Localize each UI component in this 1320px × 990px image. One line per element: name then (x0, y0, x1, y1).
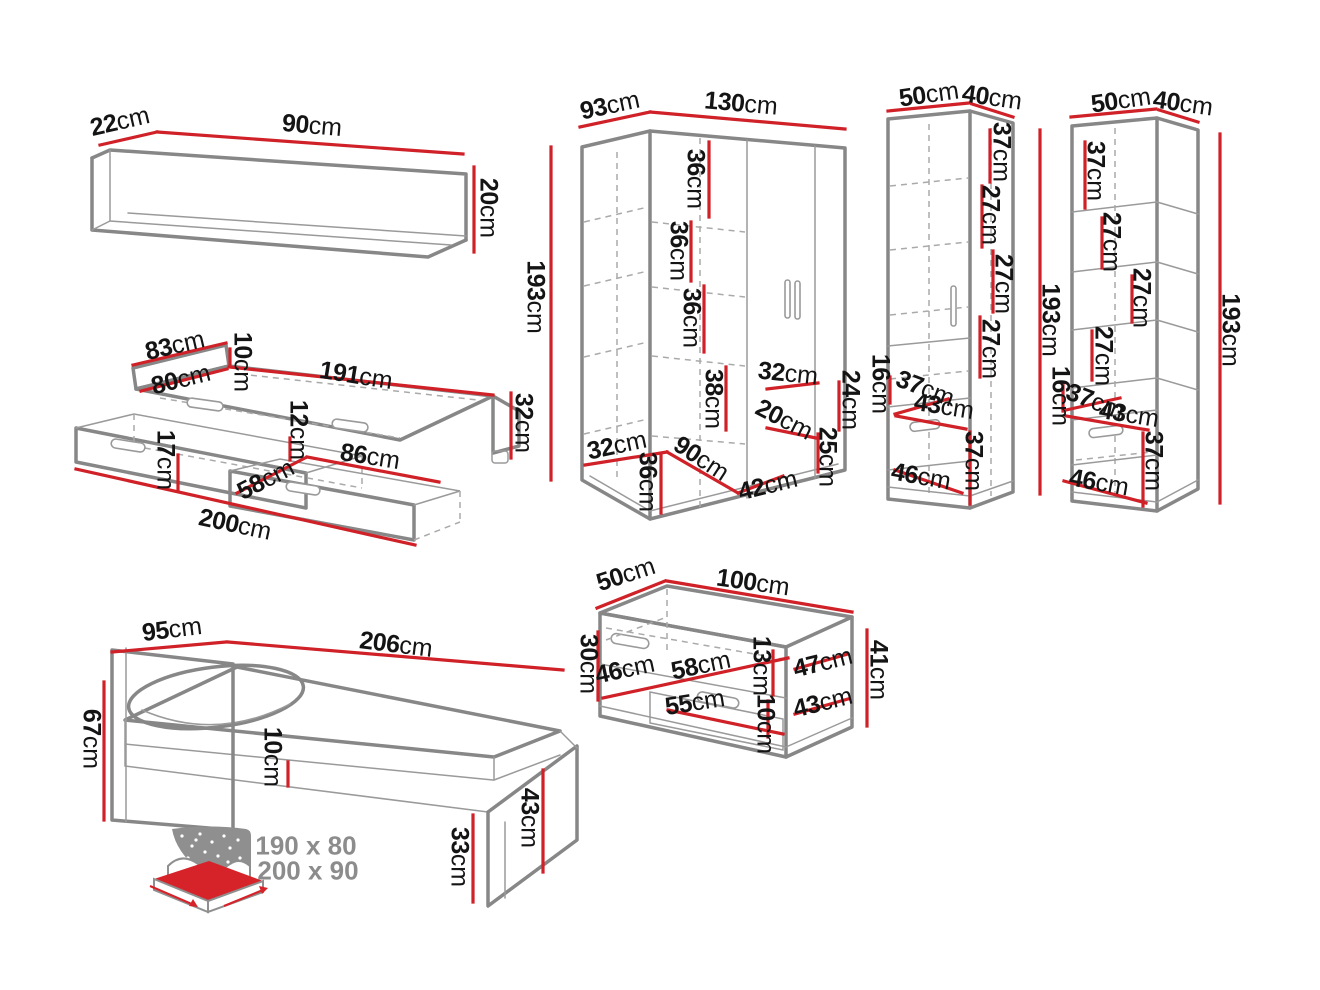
dim-cabinet-gap4: 27cm (978, 319, 1003, 379)
dim-trundle-rim-height: 12cm (286, 400, 311, 460)
dim-wardrobe-right-gap-top: 24cm (838, 370, 863, 430)
dim-bed-foot-height: 43cm (517, 788, 542, 848)
dim-wardrobe-gap-mid1: 36cm (666, 221, 691, 281)
dim-wardrobe-front-width: 130cm (703, 88, 778, 119)
dim-wardrobe-gap-bottom: 38cm (701, 369, 726, 429)
dim-cabinet-gap1: 37cm (989, 122, 1014, 182)
dim-chest-drawer-height: 10cm (753, 694, 778, 754)
wall-shelf-drawing (92, 132, 474, 257)
dim-bed-frame-height: 10cm (260, 727, 285, 787)
dim-bed-head-height: 67cm (79, 709, 104, 769)
dim-bed-clearance: 33cm (447, 827, 472, 887)
dim-bookcase-lower-height: 37cm (1141, 431, 1166, 491)
dim-bookcase-height: 193cm (1218, 293, 1243, 367)
dim-wardrobe-height: 193cm (523, 260, 548, 334)
dim-wardrobe-gap-mid2: 36cm (679, 288, 704, 348)
dim-cabinet-height: 193cm (1038, 283, 1063, 357)
furniture-dimension-diagram: 22cm 90cm 20cm 83cm 10cm 80cm 191cm 32cm… (0, 0, 1320, 990)
mattress-size-icon (150, 827, 268, 913)
dim-wardrobe-right-shelf-width: 32cm (757, 358, 819, 389)
mattress-size-option-2: 200 x 90 (257, 856, 358, 887)
dim-wall-shelf-width: 90cm (281, 111, 343, 141)
dim-trundle-drawer-depth: 17cm (153, 430, 178, 490)
dim-cabinet-gap2: 27cm (978, 185, 1003, 245)
dim-wardrobe-gap-top: 36cm (683, 149, 708, 209)
dim-trundle-rail-height: 10cm (230, 332, 255, 392)
dim-wardrobe-right-gap-bottom: 25cm (815, 427, 840, 487)
dim-bookcase-gap1: 37cm (1083, 141, 1108, 201)
dim-chest-niche-height: 13cm (749, 636, 774, 696)
dim-cabinet-niche-height: 16cm (868, 354, 893, 414)
dim-cabinet-gap3: 27cm (991, 254, 1016, 314)
dim-bookcase-gap3: 27cm (1129, 268, 1154, 328)
dim-trundle-frame-height: 32cm (511, 393, 536, 453)
dim-wardrobe-base-height: 36cm (635, 452, 660, 512)
dim-cabinet-lower-height: 37cm (961, 431, 986, 491)
dim-bookcase-gap2: 27cm (1099, 212, 1124, 272)
dim-chest-height: 41cm (866, 640, 891, 700)
dim-wall-shelf-height: 20cm (476, 178, 501, 238)
dim-bookcase-gap4: 27cm (1091, 326, 1116, 386)
